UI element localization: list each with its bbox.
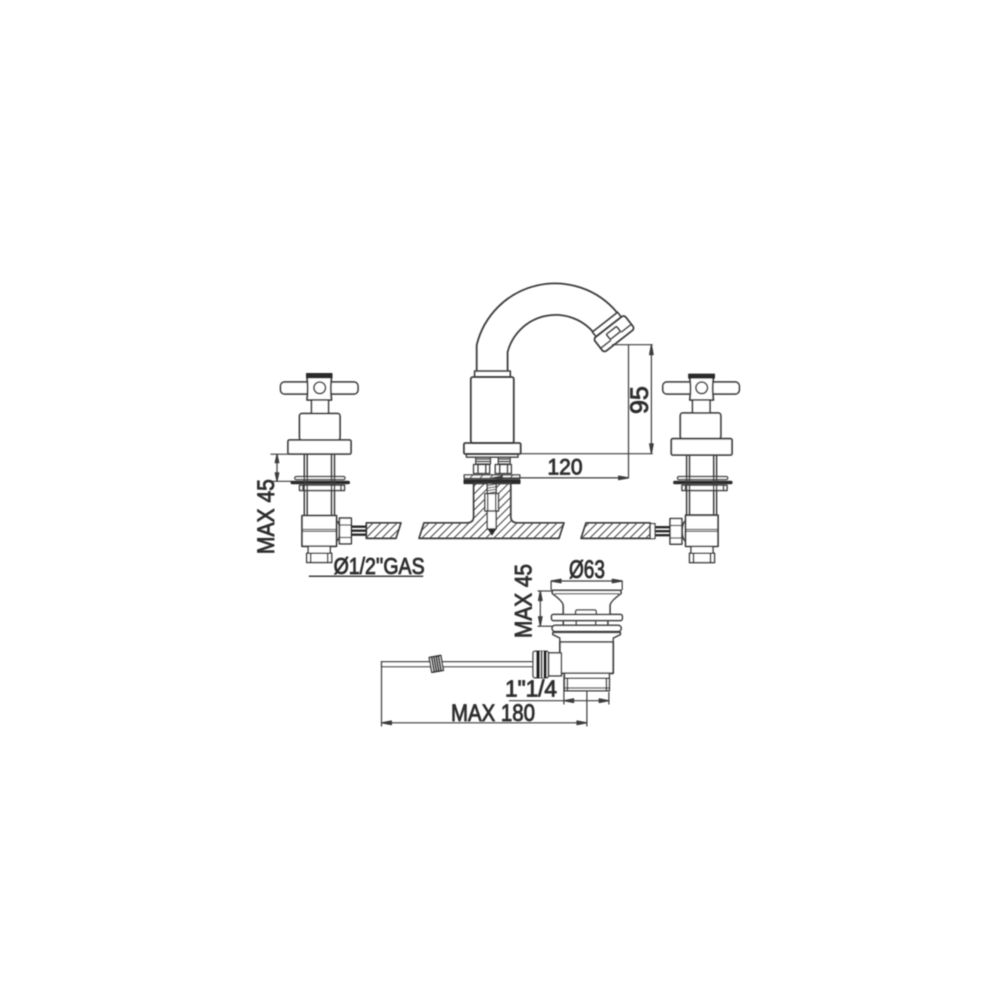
svg-text:120: 120 [548,455,583,480]
svg-text:Ø1/2''GAS: Ø1/2''GAS [334,553,425,579]
svg-text:Ø63: Ø63 [569,556,605,584]
svg-text:MAX 180: MAX 180 [451,700,535,727]
svg-text:MAX 45: MAX 45 [510,564,537,638]
svg-text:95: 95 [626,386,654,414]
svg-text:1"1/4: 1"1/4 [505,675,557,701]
svg-text:MAX 45: MAX 45 [253,479,280,554]
